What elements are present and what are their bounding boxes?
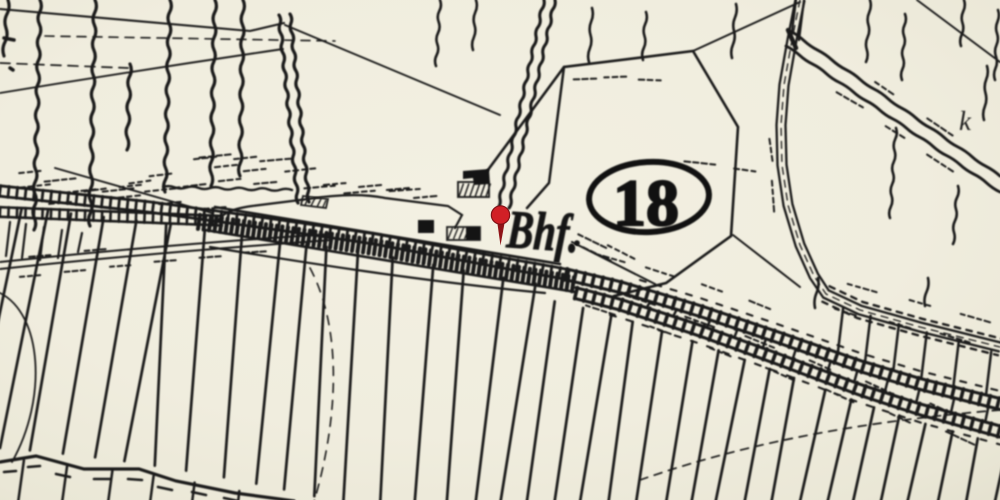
svg-text:18: 18	[613, 167, 679, 240]
svg-text:k: k	[959, 106, 972, 136]
svg-text:Bhf.: Bhf.	[504, 199, 581, 264]
